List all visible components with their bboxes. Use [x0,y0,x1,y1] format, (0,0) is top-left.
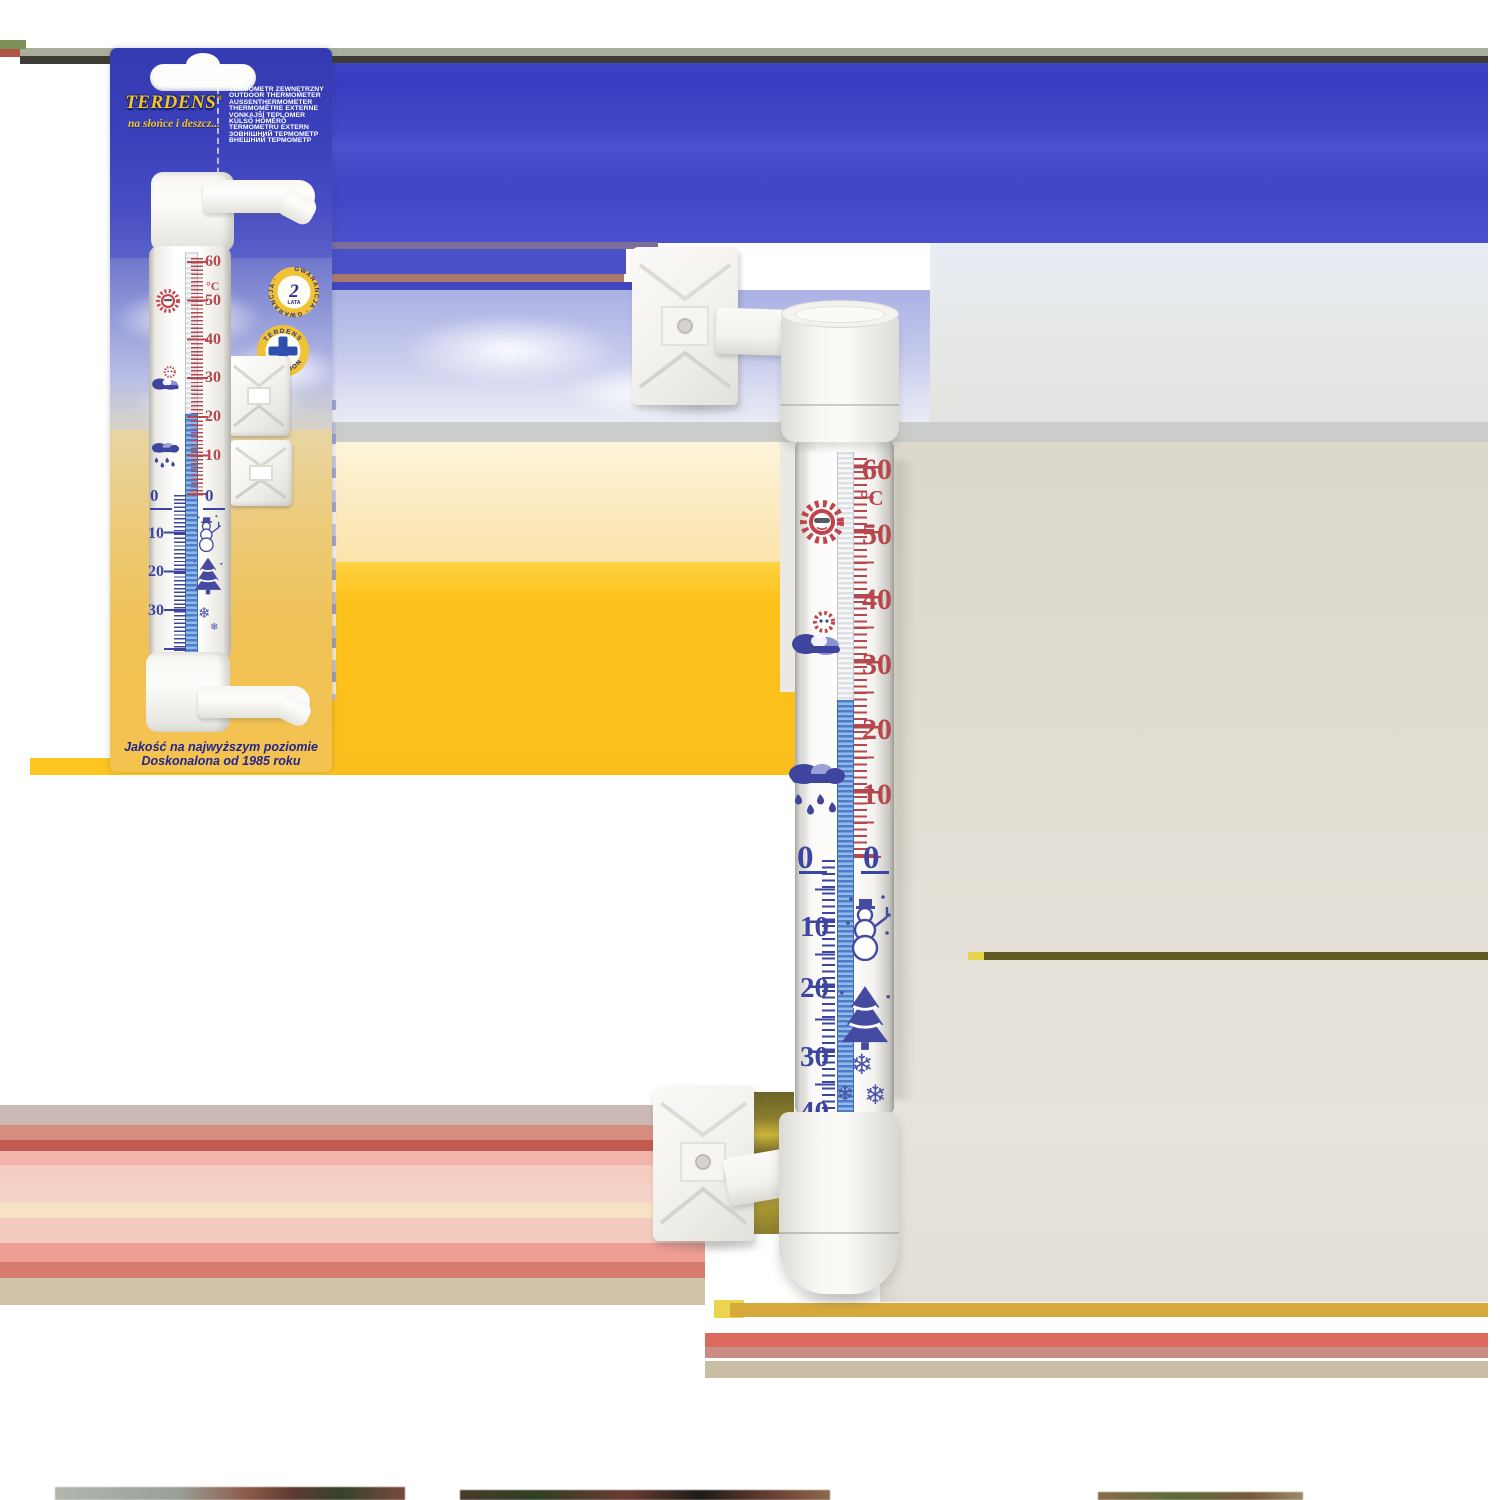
scale-label-large: 10 [800,911,829,944]
background-artifact-band [705,1333,1488,1347]
scale-ticks-negative-major [164,495,186,653]
christmas-tree-icon [191,556,225,596]
snowflake-icon: ❄ [850,1048,873,1081]
sun-icon [155,288,181,314]
capillary-tube-large [837,452,854,702]
scale-label-large: 40 [862,583,892,617]
cap-seam [779,1232,899,1234]
scale-unit-large: °C [860,486,884,511]
background-artifact-band [0,1140,705,1151]
snowman-icon [194,514,222,552]
photo-sliver [1098,1492,1303,1500]
zero-line [150,508,172,510]
background-artifact-band [330,274,624,282]
background-artifact-band [0,1262,705,1278]
scale-label: 60 [205,253,221,271]
scale-label: 20 [205,408,221,426]
christmas-tree-icon [836,983,894,1053]
background-artifact-band [880,442,1488,1302]
scale-zero-right: 0 [205,486,214,506]
background-artifact-band [0,1278,705,1305]
scale-label-large: 50 [862,518,892,552]
background-artifact-band [705,1361,1488,1378]
rain-cloud-icon [149,441,181,475]
quality-text: Jakość na najwyższym poziomie Doskonalon… [110,740,332,768]
background-artifact-band [330,282,632,290]
snowflake-icon: ❄ [864,1080,887,1111]
photo-sliver [460,1490,830,1500]
background-artifact-band [330,242,658,249]
sun-icon [798,498,846,546]
scale-zero-left: 0 [150,486,159,506]
scale-zero-right-large: 0 [863,840,880,877]
background-artifact-band [0,1105,705,1125]
scale-zero-left-large: 0 [797,840,814,877]
snowflake-icon: ❄ [836,1082,854,1107]
background-artifact-band [0,1183,705,1203]
background-artifact-band [0,1151,705,1165]
sun-behind-cloud-icon [151,363,183,393]
background-artifact-band [0,1125,705,1140]
quality-line-2: Doskonalona od 1985 roku [110,754,332,768]
scale-label: 40 [205,331,221,349]
scale-label: 30 [148,602,164,620]
photo-sliver [55,1487,405,1500]
cap-top-ring [795,306,885,323]
pad-grooves [228,356,290,436]
background-artifact-band [330,442,797,562]
scale-label-large: 20 [862,713,892,747]
scale-label-large: 30 [800,1041,829,1074]
scale-label-large: 10 [862,778,892,812]
background-artifact-band [0,49,20,57]
warranty-years-label: LATA [287,300,300,306]
thermometer-bottom-cap-large [779,1112,899,1294]
product-name-line: ВНЕШНИЙ ТЕРМОМЕТР [229,138,329,144]
warranty-years: 2 [288,281,299,302]
background-artifact-band [930,243,1488,422]
scale-label-large: 60 [862,453,892,487]
snowflake-icon: ❄ [210,622,218,633]
background-artifact-band [330,249,626,274]
adhesive-pad [228,356,290,436]
pad-grooves [230,440,292,506]
background-artifact-band [0,1203,705,1218]
background-artifact-band [330,562,797,775]
background-artifact-band [330,422,1488,442]
adhesive-pad [230,440,292,506]
rain-cloud-icon [784,760,848,830]
brand-logo: TERDENS® [118,92,230,114]
quality-line-1: Jakość na najwyższym poziomie [110,740,332,754]
warranty-badge: GWARANCJA · GWARANCJA · 2 LATA [268,266,320,318]
background-artifact-band [0,1243,705,1262]
background-artifact-band [0,40,26,49]
sun-behind-cloud-icon [790,605,848,661]
thermometer-top-cap-large [781,312,899,442]
snowflake-icon: ❄ [198,604,211,622]
scale-label: 10 [205,447,221,465]
background-artifact-band [968,952,1488,960]
scale-label: 20 [148,563,164,581]
euro-hang-slot-dome [186,53,220,77]
product-name-list: TERMOMETR ZEWNĘTRZNY OUTDOOR THERMOMETER… [229,87,329,145]
packaging-card: TERDENS® na słońce i deszcz... TERMOMETR… [110,48,332,772]
scale-label: 10 [148,525,164,543]
cap-seam [781,404,899,406]
scale-label-large: 20 [800,972,829,1005]
snowman-icon [843,893,893,961]
product-photo: TERDENS® na słońce i deszcz... TERMOMETR… [0,0,1500,1500]
scale-label: 50 [205,292,221,310]
scale-label: 30 [205,369,221,387]
tube-shadow-right [894,460,914,1100]
background-artifact-band [705,1347,1488,1358]
zero-line [203,508,225,510]
background-artifact-band [0,1165,705,1183]
background-artifact-band [0,1218,705,1243]
scale-label-large: 30 [862,648,892,682]
